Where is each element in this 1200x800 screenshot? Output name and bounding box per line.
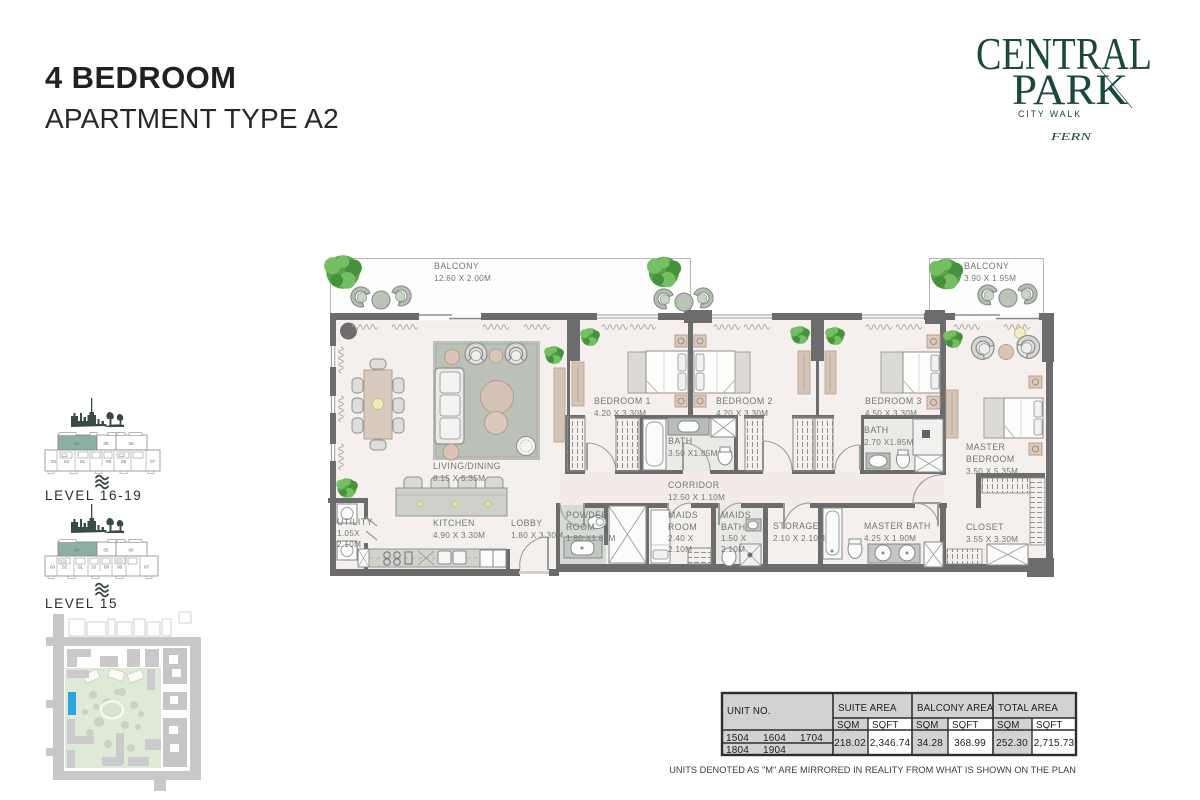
svg-text:2,346.74: 2,346.74 xyxy=(870,738,911,749)
svg-text:FERN: FERN xyxy=(1050,131,1092,143)
svg-text:2.10M: 2.10M xyxy=(668,545,692,554)
svg-text:LEVEL 16-19: LEVEL 16-19 xyxy=(45,488,142,503)
svg-text:BALCONY: BALCONY xyxy=(434,261,479,271)
svg-text:2.10M: 2.10M xyxy=(721,545,745,554)
svg-text:LIVING/DINING: LIVING/DINING xyxy=(433,461,501,471)
svg-text:2.70 X1.85M: 2.70 X1.85M xyxy=(864,438,914,447)
svg-text:SQFT: SQFT xyxy=(952,720,978,731)
svg-text:1504: 1504 xyxy=(726,733,749,744)
svg-text:BATH: BATH xyxy=(668,436,693,446)
svg-text:8.15 X 5.35M: 8.15 X 5.35M xyxy=(433,474,485,483)
svg-text:MASTER: MASTER xyxy=(966,442,1005,452)
svg-text:2.40 X: 2.40 X xyxy=(668,534,694,543)
svg-text:05: 05 xyxy=(103,441,109,446)
svg-text:4.50 X 3.30M: 4.50 X 3.30M xyxy=(865,409,917,418)
svg-text:2.10M: 2.10M xyxy=(337,540,361,549)
svg-text:BEDROOM 3: BEDROOM 3 xyxy=(865,396,922,406)
svg-text:LEVEL 15: LEVEL 15 xyxy=(45,596,118,611)
svg-text:UTILITY: UTILITY xyxy=(337,517,373,527)
svg-text:06: 06 xyxy=(128,548,134,553)
svg-text:07: 07 xyxy=(150,459,156,464)
svg-text:05: 05 xyxy=(103,548,109,553)
svg-text:2,715.73: 2,715.73 xyxy=(1034,738,1075,749)
svg-text:UNITS DENOTED AS "M" ARE MIRRO: UNITS DENOTED AS "M" ARE MIRRORED IN REA… xyxy=(669,765,1076,775)
svg-text:368.99: 368.99 xyxy=(954,738,986,749)
svg-text:BATH: BATH xyxy=(864,425,889,435)
svg-text:2.10 X 2.10M: 2.10 X 2.10M xyxy=(773,534,825,543)
svg-text:01: 01 xyxy=(80,459,86,464)
svg-text:03: 03 xyxy=(50,565,56,570)
svg-text:SQM: SQM xyxy=(997,720,1020,731)
svg-text:BEDROOM: BEDROOM xyxy=(966,454,1015,464)
svg-text:BALCONY AREA: BALCONY AREA xyxy=(917,703,994,714)
svg-text:03: 03 xyxy=(51,459,57,464)
svg-text:3.50 X 5.35M: 3.50 X 5.35M xyxy=(966,467,1018,476)
svg-text:10: 10 xyxy=(91,565,97,570)
svg-text:SUITE AREA: SUITE AREA xyxy=(838,703,897,714)
svg-text:MAIDS: MAIDS xyxy=(721,510,751,520)
svg-text:BEDROOM 2: BEDROOM 2 xyxy=(716,396,773,406)
svg-text:STORAGE: STORAGE xyxy=(773,521,819,531)
svg-text:1.50 X: 1.50 X xyxy=(721,534,747,543)
svg-text:BATH: BATH xyxy=(721,522,746,532)
svg-text:4.20 X 3.30M: 4.20 X 3.30M xyxy=(716,409,768,418)
svg-text:02: 02 xyxy=(64,459,70,464)
svg-text:TOTAL AREA: TOTAL AREA xyxy=(998,703,1058,714)
svg-text:BEDROOM 1: BEDROOM 1 xyxy=(594,396,651,406)
svg-text:09: 09 xyxy=(106,459,112,464)
svg-text:3.50 X1.85M: 3.50 X1.85M xyxy=(668,449,718,458)
svg-text:CLOSET: CLOSET xyxy=(966,522,1004,532)
svg-text:4.25 X 1.90M: 4.25 X 1.90M xyxy=(864,534,916,543)
svg-text:ROOM: ROOM xyxy=(566,522,595,532)
svg-text:4.20 X 3.30M: 4.20 X 3.30M xyxy=(594,409,646,418)
svg-text:04: 04 xyxy=(74,548,80,553)
svg-text:MASTER BATH: MASTER BATH xyxy=(864,521,931,531)
svg-text:08: 08 xyxy=(121,459,127,464)
svg-text:APARTMENT TYPE A2: APARTMENT TYPE A2 xyxy=(45,103,339,134)
svg-text:SQM: SQM xyxy=(837,720,860,731)
svg-text:12.50 X 1.10M: 12.50 X 1.10M xyxy=(668,493,725,502)
svg-text:ROOM: ROOM xyxy=(668,522,697,532)
svg-text:01: 01 xyxy=(78,565,84,570)
svg-text:3.55 X 3.30M: 3.55 X 3.30M xyxy=(966,535,1018,544)
svg-text:1604: 1604 xyxy=(763,733,786,744)
svg-text:1804: 1804 xyxy=(726,745,749,756)
svg-text:07: 07 xyxy=(144,565,150,570)
svg-text:252.30: 252.30 xyxy=(996,738,1028,749)
svg-text:12.60 X 2.00M: 12.60 X 2.00M xyxy=(434,274,491,283)
svg-text:MAIDS: MAIDS xyxy=(668,510,698,520)
svg-text:1.80 X 3.30M: 1.80 X 3.30M xyxy=(511,531,563,540)
svg-text:BALCONY: BALCONY xyxy=(964,261,1009,271)
svg-text:02: 02 xyxy=(62,565,68,570)
svg-text:06: 06 xyxy=(128,441,134,446)
svg-text:SQFT: SQFT xyxy=(1036,720,1062,731)
svg-text:SQFT: SQFT xyxy=(872,720,898,731)
svg-text:1704: 1704 xyxy=(800,733,823,744)
svg-text:4.90 X 3.30M: 4.90 X 3.30M xyxy=(433,531,485,540)
svg-text:SQM: SQM xyxy=(916,720,939,731)
svg-text:POWDER: POWDER xyxy=(566,510,608,520)
svg-text:08: 08 xyxy=(117,565,123,570)
svg-text:PARK: PARK xyxy=(1012,67,1128,114)
svg-text:09: 09 xyxy=(104,565,110,570)
svg-text:1.80 X1.80M: 1.80 X1.80M xyxy=(566,534,616,543)
svg-text:1.05X: 1.05X xyxy=(337,529,360,538)
svg-text:04: 04 xyxy=(74,441,80,446)
svg-text:34.28: 34.28 xyxy=(917,738,943,749)
svg-text:KITCHEN: KITCHEN xyxy=(433,518,475,528)
svg-text:UNIT NO.: UNIT NO. xyxy=(727,706,771,717)
svg-text:4 BEDROOM: 4 BEDROOM xyxy=(45,60,236,95)
svg-text:CORRIDOR: CORRIDOR xyxy=(668,480,720,490)
svg-text:1904: 1904 xyxy=(763,745,786,756)
svg-text:LOBBY: LOBBY xyxy=(511,518,543,528)
svg-text:218.02: 218.02 xyxy=(834,738,866,749)
svg-text:CITY WALK: CITY WALK xyxy=(1018,109,1082,120)
svg-text:3.90 X 1.95M: 3.90 X 1.95M xyxy=(964,274,1016,283)
